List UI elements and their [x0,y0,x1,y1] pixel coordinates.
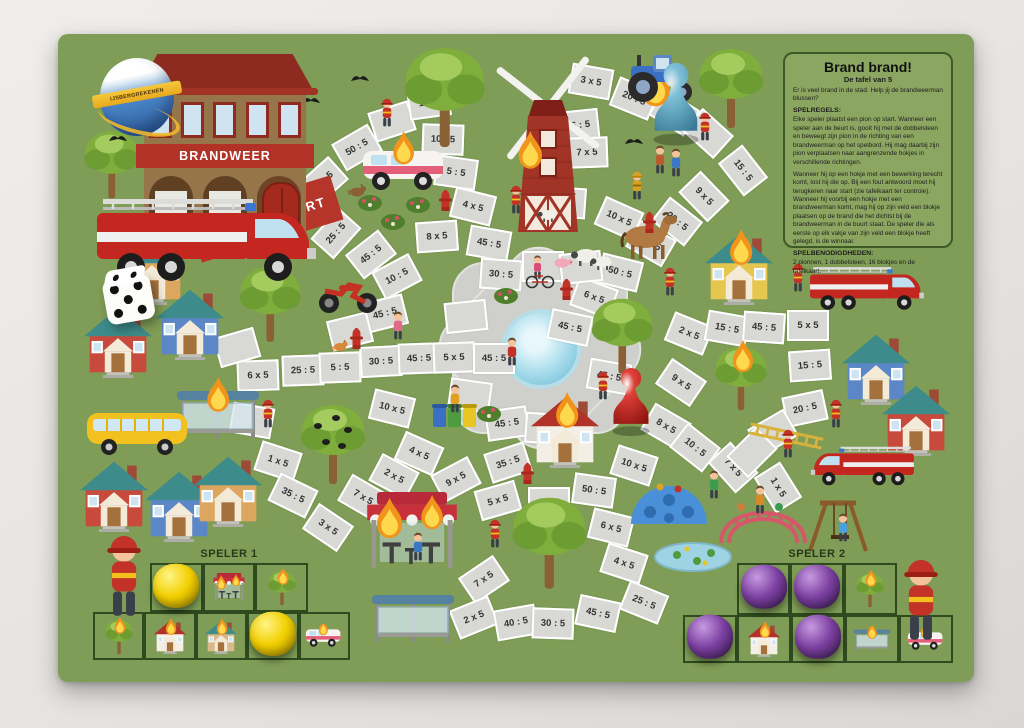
player-field-cell[interactable] [737,563,790,615]
rules-intro: Er is veel brand in de stad. Help jij de… [793,87,943,104]
board-tile[interactable]: 8 x 5 [415,219,459,253]
garage-arch [149,176,193,232]
dice[interactable] [100,264,157,326]
board-tile-blank[interactable] [447,377,493,414]
rules-needs-text: 2 pionnen, 1 dobbelsteen, 16 blokjes en … [793,259,943,276]
player-field-cell[interactable] [683,615,737,663]
player1-top-row [150,563,308,612]
player-field-cell[interactable] [93,612,144,660]
garage-arch [257,176,301,232]
board-tile[interactable]: 10 : 5 [421,123,464,155]
board-tile[interactable]: 15 : 5 [788,348,832,382]
board-tile[interactable]: 6 x 5 [236,359,279,391]
player-field-cell[interactable] [299,612,350,660]
station-sign-label: BRANDWEER [179,149,271,163]
board-tile[interactable]: 50 : 5 [571,472,617,509]
board-tile-blank[interactable] [443,298,488,333]
board-tile[interactable]: 3 x 5 [568,62,615,100]
burning-fire-van [305,624,343,649]
burning-house [154,618,186,654]
station-window [246,102,269,138]
player1-title: SPELER 1 [150,548,308,560]
player-field-cell[interactable] [144,612,195,660]
player-field-cell[interactable] [845,615,899,663]
rules-title: Brand brand! [793,59,943,75]
burning-tree [855,571,885,608]
player2-title: SPELER 2 [737,548,897,560]
garage-arch [203,176,247,232]
board-tile[interactable]: 5 : 5 [433,154,479,191]
board-tile[interactable]: 5 x 5 [432,341,475,373]
rules-paragraph-1: Elke speler plaatst een pion op start. W… [793,116,943,167]
board-tile[interactable]: 45 : 5 [484,405,530,442]
player-field-cell[interactable] [247,612,298,660]
burning-bus-stop [853,626,891,652]
board-tile-blank[interactable] [524,411,568,445]
player-block-piece[interactable] [250,612,296,656]
rules-subtitle: De tafel van 5 [793,75,943,84]
player-field-cell[interactable] [790,563,843,615]
board-tile[interactable]: 5 : 5 [318,351,361,383]
player-field-cell[interactable] [791,615,845,663]
player-field-cell[interactable] [203,563,256,612]
rules-panel: Brand brand! De tafel van 5 Er is veel b… [783,52,953,248]
pawn-red[interactable] [609,366,653,436]
board-tile[interactable]: 5 : 5 [543,185,587,219]
player-field-cell[interactable] [899,615,953,663]
player2-bottom-row [683,615,953,663]
player-block-piece[interactable] [795,615,841,659]
red-door [262,182,300,232]
burning-tree [267,569,297,606]
player-field-cell[interactable] [255,563,308,612]
station-garage-floor [144,168,306,232]
player-field-cell[interactable] [844,563,897,615]
board-tile[interactable]: 30 : 5 [531,607,574,639]
player-block-piece[interactable] [741,565,787,609]
board-tile-blank[interactable] [229,401,276,439]
station-window [213,102,236,138]
publisher-logo: IJSBERGREKENEN [95,52,179,142]
board-tile[interactable]: 45 : 5 [473,343,515,374]
board-tile[interactable]: 30 : 5 [479,257,523,291]
rules-paragraph-2: Wanneer hij op een hokje met een bewerki… [793,171,943,247]
board-tile[interactable]: 5 x 5 [787,310,829,341]
photo-backdrop: 40 : 550 : 51 x 510 : 55 : 54 x 58 x 545… [0,0,1024,728]
station-window [278,102,301,138]
player-field-cell[interactable] [150,563,203,612]
player1-area: SPELER 1 [93,563,350,660]
board-tile[interactable]: 30 : 5 [359,344,403,377]
station-sign: BRANDWEER [136,144,314,168]
board-tile[interactable]: 45 : 5 [466,224,513,262]
burning-building [205,618,237,654]
garage-door [209,191,241,216]
burning-shop [212,573,246,602]
rules-heading: SPELREGELS: [793,107,943,116]
board-tile[interactable]: 7 x 5 [565,136,608,168]
player-block-piece[interactable] [153,563,199,607]
board-tile[interactable]: 45 : 5 [742,310,786,344]
player-field-cell[interactable] [196,612,247,660]
garage-door [155,191,187,216]
station-window [181,102,204,138]
rules-needs-heading: SPELBENODIGDHEDEN: [793,250,943,259]
board-tile-blank[interactable] [558,249,603,284]
pawn-blue[interactable] [650,60,702,146]
board-tile[interactable]: 1 x 5 [406,84,452,121]
player-field-cell[interactable] [737,615,791,663]
burning-fire-van [907,627,945,652]
player2-top-row [737,563,897,615]
burning-house [748,621,780,657]
player2-area: SPELER 2 [683,563,953,663]
board-tile[interactable]: 3 x 5 [528,487,570,518]
burning-tree [104,618,134,655]
player1-bottom-row [93,612,350,660]
player-block-piece[interactable] [794,565,840,609]
player-block-piece[interactable] [687,615,733,659]
